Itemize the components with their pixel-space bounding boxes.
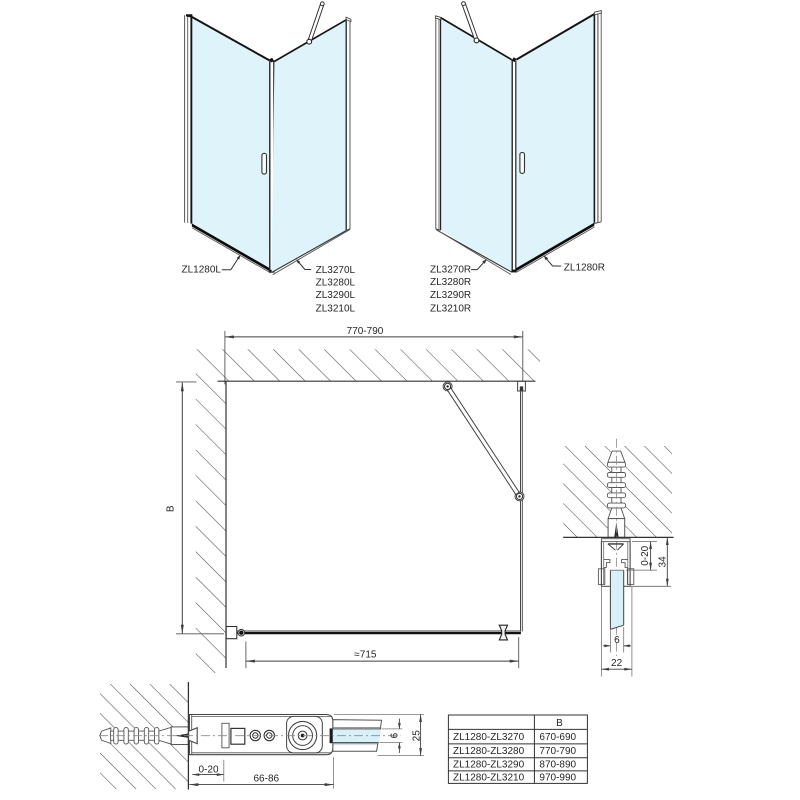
svg-text:ZL1280-ZL3290: ZL1280-ZL3290 [453, 759, 525, 770]
svg-text:ZL1280-ZL3210: ZL1280-ZL3210 [453, 772, 525, 783]
svg-text:ZL1280R: ZL1280R [564, 262, 605, 273]
svg-text:ZL3280L: ZL3280L [316, 278, 356, 289]
svg-text:ZL3210L: ZL3210L [316, 303, 356, 314]
svg-text:66-86: 66-86 [254, 773, 280, 784]
svg-text:25: 25 [411, 730, 422, 742]
svg-text:ZL3270R: ZL3270R [430, 265, 471, 276]
svg-text:≈715: ≈715 [354, 650, 377, 661]
svg-text:6: 6 [614, 635, 620, 646]
svg-text:22: 22 [611, 658, 623, 669]
svg-text:970-990: 970-990 [539, 772, 576, 783]
svg-text:ZL3290R: ZL3290R [430, 290, 471, 301]
svg-text:6: 6 [390, 732, 401, 738]
svg-text:ZL3290L: ZL3290L [316, 290, 356, 301]
svg-text:770-790: 770-790 [539, 746, 576, 757]
svg-text:B: B [556, 718, 563, 729]
svg-text:B: B [166, 505, 177, 512]
svg-text:ZL3280R: ZL3280R [430, 277, 471, 288]
svg-text:ZL1280L: ZL1280L [182, 265, 222, 276]
svg-text:870-890: 870-890 [539, 759, 576, 770]
svg-text:ZL1280-ZL3280: ZL1280-ZL3280 [453, 746, 525, 757]
svg-text:0-20: 0-20 [640, 545, 651, 565]
svg-text:ZL3270L: ZL3270L [316, 265, 356, 276]
svg-text:670-690: 670-690 [539, 732, 576, 743]
svg-text:0-20: 0-20 [198, 765, 218, 776]
svg-text:770-790: 770-790 [347, 326, 384, 337]
svg-text:ZL1280-ZL3270: ZL1280-ZL3270 [453, 732, 525, 743]
svg-text:34: 34 [658, 556, 669, 568]
svg-text:ZL3210R: ZL3210R [430, 303, 471, 314]
